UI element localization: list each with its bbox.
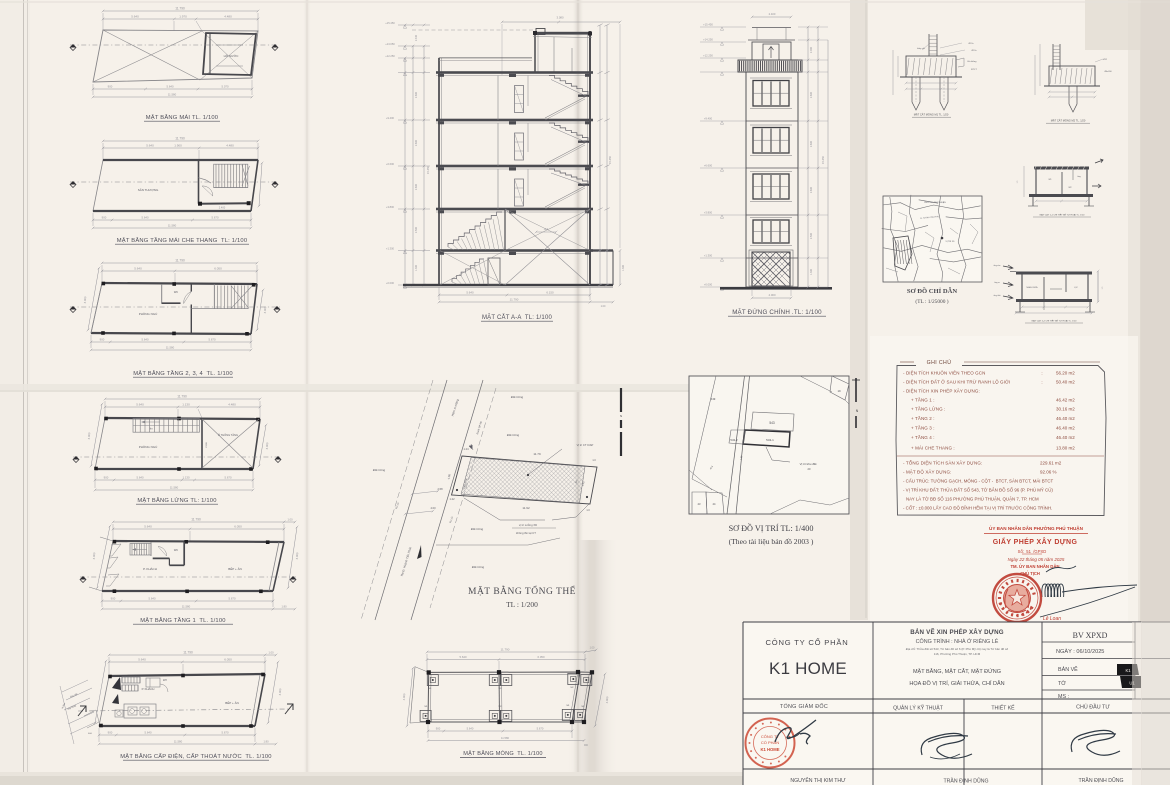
- svg-text:1.300: 1.300: [622, 264, 625, 271]
- svg-text:5.670: 5.670: [537, 727, 544, 731]
- svg-text:2.800: 2.800: [810, 140, 813, 147]
- svg-text:2.500: 2.500: [810, 232, 813, 239]
- svg-text:5.640: 5.640: [142, 338, 149, 342]
- svg-text:11.790: 11.790: [510, 298, 519, 302]
- svg-text:- MẬT ĐỘ XÂY DỰNG:: - MẬT ĐỘ XÂY DỰNG:: [903, 469, 951, 475]
- svg-text:2.800: 2.800: [415, 139, 418, 146]
- svg-text:TRẦN ĐỊNH DŨNG: TRẦN ĐỊNH DŨNG: [944, 778, 989, 785]
- svg-text:543-2: 543-2: [730, 438, 738, 442]
- svg-text:Địa chỉ: Thửa đất số 543, Tờ b: Địa chỉ: Thửa đất số 543, Tờ bản đồ số 6…: [906, 647, 1009, 651]
- svg-text:4.480: 4.480: [224, 15, 232, 19]
- svg-text:NAY LÀ TỜ BĐ SỐ 116 PHƯỜNG PHÚ: NAY LÀ TỜ BĐ SỐ 116 PHƯỜNG PHÚ THUẬN, QU…: [906, 497, 1039, 502]
- svg-text:5.640: 5.640: [137, 476, 144, 480]
- svg-text:- CẤU TRÚC: TƯỜNG GẠCH, MÓNG -: - CẤU TRÚC: TƯỜNG GẠCH, MÓNG - CỘT - BTC…: [903, 479, 1054, 484]
- svg-text:(Theo tài liệu bản đồ 2003 ): (Theo tài liệu bản đồ 2003 ): [729, 537, 814, 546]
- svg-text:5.640: 5.640: [138, 658, 146, 662]
- svg-text:5.640: 5.640: [460, 655, 467, 659]
- svg-text:2.000: 2.000: [810, 46, 813, 53]
- svg-text:+1.300: +1.300: [704, 254, 713, 258]
- svg-text:900: 900: [111, 597, 116, 601]
- svg-text:MS :: MS :: [1058, 694, 1069, 700]
- svg-text:50.40 m2: 50.40 m2: [1056, 380, 1075, 385]
- svg-text:+1.300: +1.300: [386, 247, 395, 251]
- svg-text:5.640: 5.640: [131, 15, 139, 19]
- svg-text:1.80: 1.80: [281, 605, 287, 609]
- svg-text:MẶT BẰNG TẦNG MÁI CHE THANG T: MẶT BẰNG TẦNG MÁI CHE THANG TL: 1/100: [117, 236, 248, 244]
- svg-text:MẶT BẰNG MÁI TL. 1/100: MẶT BẰNG MÁI TL. 1/100: [146, 113, 219, 121]
- svg-text:11.790: 11.790: [175, 137, 185, 141]
- svg-text:4.00: 4.00: [430, 506, 436, 510]
- svg-text:K1 HOME: K1 HOME: [760, 747, 779, 752]
- svg-text:11.790: 11.790: [501, 648, 510, 652]
- svg-text:BẢN VẼ: BẢN VẼ: [1058, 666, 1078, 673]
- svg-text:- TỔNG DIỆN TÍCH SÀN XÂY DỰNG:: - TỔNG DIỆN TÍCH SÀN XÂY DỰNG:: [903, 459, 982, 466]
- svg-text:5.640: 5.640: [167, 85, 174, 89]
- svg-text:PHÒNG NGỦ: PHÒNG NGỦ: [139, 311, 158, 316]
- svg-text:2.400: 2.400: [769, 12, 776, 16]
- svg-text:2.800: 2.800: [415, 183, 418, 190]
- svg-text:+3.800: +3.800: [386, 205, 395, 209]
- svg-text:vị trí xưởng XD: vị trí xưởng XD: [519, 523, 537, 527]
- svg-text:WC: WC: [174, 548, 178, 552]
- svg-text:- DIỆN TÍCH ĐẤT Ở SAU KHI TRỪ: - DIỆN TÍCH ĐẤT Ở SAU KHI TRỪ RANH LỘ GI…: [903, 378, 1010, 385]
- svg-text:Ngày 22 tháng 05 năm 2025: Ngày 22 tháng 05 năm 2025: [1008, 557, 1065, 562]
- svg-text:ĐH: ĐH: [163, 679, 167, 682]
- svg-text:HỌA ĐỒ VỊ TRÍ, GIẢI THỬA, CHỈ: HỌA ĐỒ VỊ TRÍ, GIẢI THỬA, CHỈ DẪN: [909, 680, 1004, 687]
- svg-text:BẢN VẼ XIN PHÉP XÂY DỰNG: BẢN VẼ XIN PHÉP XÂY DỰNG: [910, 628, 1004, 636]
- svg-text:549: 549: [711, 397, 716, 401]
- svg-text:46.40 m2: 46.40 m2: [1056, 416, 1075, 421]
- svg-text:+ TẦNG 4 :: + TẦNG 4 :: [911, 434, 935, 440]
- svg-text:11.790: 11.790: [183, 651, 193, 655]
- svg-text:5.640: 5.640: [466, 291, 474, 295]
- svg-text:900: 900: [436, 727, 441, 731]
- svg-text:4.000: 4.000: [769, 293, 776, 297]
- svg-text:900: 900: [108, 731, 113, 735]
- svg-text:13.80 m2: 13.80 m2: [1056, 446, 1075, 451]
- svg-text:15.450: 15.450: [608, 155, 612, 163]
- svg-text:+ TẦNG LỬNG :: + TẦNG LỬNG :: [911, 406, 945, 412]
- svg-text:Đà kiềng: Đà kiềng: [968, 60, 977, 63]
- svg-text:- DIỆN TÍCH KHUÔN VIÊN THEO GC: - DIỆN TÍCH KHUÔN VIÊN THEO GCN: [903, 369, 985, 376]
- svg-text:Vị trí CT K/AP: Vị trí CT K/AP: [577, 443, 594, 447]
- svg-text:900: 900: [104, 476, 109, 480]
- svg-text:5.640: 5.640: [142, 216, 149, 220]
- svg-text:- CỐT : ±0.000 LẤY CAO ĐỘ ĐỈNH: - CỐT : ±0.000 LẤY CAO ĐỘ ĐỈNH HẺM TẠI V…: [903, 506, 1052, 511]
- svg-text:2.400: 2.400: [415, 34, 418, 41]
- svg-text:4.000: 4.000: [87, 432, 92, 440]
- svg-text:1.00: 1.00: [590, 647, 595, 650]
- svg-text:+15.450: +15.450: [385, 21, 395, 25]
- svg-text:NGUYỄN THỊ KIM THƯ: NGUYỄN THỊ KIM THƯ: [790, 777, 846, 784]
- svg-text:900: 900: [108, 85, 113, 89]
- svg-text:6.050: 6.050: [234, 525, 242, 529]
- svg-text:NGĂN CHỨA: NGĂN CHỨA: [1026, 286, 1038, 289]
- svg-text:TL : 1/200: TL : 1/200: [506, 600, 538, 609]
- svg-text:2.800: 2.800: [810, 186, 813, 193]
- svg-text:Lê Loan: Lê Loan: [1043, 616, 1061, 622]
- svg-text:Ø6a200: Ø6a200: [1104, 71, 1112, 73]
- svg-text:4.000: 4.000: [295, 552, 300, 560]
- svg-text:NGÀY : 06/10/2025: NGÀY : 06/10/2025: [1056, 648, 1104, 655]
- svg-text:MẶT BẰNG MÓNG TL. 1/100: MẶT BẰNG MÓNG TL. 1/100: [463, 749, 543, 757]
- svg-text:1.00: 1.00: [287, 518, 293, 522]
- svg-text:11.790: 11.790: [175, 7, 185, 11]
- svg-text:2.800: 2.800: [415, 91, 418, 98]
- svg-text:11.580: 11.580: [182, 605, 191, 609]
- svg-text:- DIỆN TÍCH XIN PHÉP XÂY DỰNG:: - DIỆN TÍCH XIN PHÉP XÂY DỰNG:: [903, 387, 980, 394]
- svg-text:MẶT CẮT A-A TL: 1/100: MẶT CẮT A-A TL: 1/100: [482, 313, 553, 321]
- svg-text:+9.400: +9.400: [386, 116, 395, 120]
- svg-text:WC: WC: [174, 290, 178, 294]
- svg-text:CỔ PHẦN: CỔ PHẦN: [761, 740, 779, 745]
- svg-text:+0.000: +0.000: [386, 281, 395, 285]
- svg-text:+3.800: +3.800: [704, 211, 713, 215]
- svg-text:1.970: 1.970: [179, 15, 187, 19]
- svg-text:+ MÁI CHE THANG :: + MÁI CHE THANG :: [911, 445, 955, 451]
- svg-text:5.640: 5.640: [144, 525, 152, 529]
- svg-text:4.000: 4.000: [83, 296, 88, 304]
- svg-text:92.06 %: 92.06 %: [1040, 470, 1057, 475]
- svg-text:Đất trống: Đất trống: [471, 527, 484, 531]
- svg-text:5.640: 5.640: [145, 731, 152, 735]
- svg-text:1.130: 1.130: [182, 403, 190, 407]
- svg-text:6.050: 6.050: [538, 655, 545, 659]
- svg-text:THIẾT KẾ: THIẾT KẾ: [991, 705, 1015, 712]
- svg-text:15.450: 15.450: [426, 165, 430, 173]
- svg-text:1.24: 1.24: [463, 447, 469, 451]
- svg-text:1.900: 1.900: [174, 144, 182, 148]
- svg-text:1.22: 1.22: [449, 497, 455, 501]
- svg-text:ống ra: ống ra: [994, 281, 1000, 284]
- svg-text:5.070: 5.070: [222, 85, 229, 89]
- svg-text:900: 900: [102, 216, 107, 220]
- svg-text:6.050: 6.050: [224, 658, 232, 662]
- svg-text:46.42 m2: 46.42 m2: [1056, 398, 1075, 403]
- svg-text:+0.000: +0.000: [704, 283, 713, 287]
- svg-text:MẶT BẰNG CẤP ĐIỆN, CẤP THOÁT N: MẶT BẰNG CẤP ĐIỆN, CẤP THOÁT NƯỚC TL. 1/…: [120, 752, 271, 760]
- svg-text:229.61 m2: 229.61 m2: [1040, 461, 1062, 466]
- svg-text:2.800: 2.800: [810, 91, 813, 98]
- svg-text:TỜ: TỜ: [1058, 680, 1066, 687]
- svg-text:5.670: 5.670: [212, 216, 219, 220]
- svg-text:11.580: 11.580: [168, 93, 177, 97]
- svg-text:MẶT BẰNG, MẶT CẮT, MẶT ĐỨNG: MẶT BẰNG, MẶT CẮT, MẶT ĐỨNG: [913, 667, 1001, 675]
- svg-text:1.00: 1.00: [268, 651, 274, 655]
- svg-text:6.150: 6.150: [546, 291, 554, 295]
- svg-text:4.000: 4.000: [265, 442, 270, 450]
- svg-text:1.300: 1.300: [810, 268, 813, 275]
- svg-text:2.195: 2.195: [206, 441, 208, 447]
- svg-text:900: 900: [100, 338, 105, 342]
- svg-text:N: N: [620, 414, 622, 418]
- svg-text:11.580: 11.580: [166, 346, 175, 350]
- svg-text:K1: K1: [1125, 668, 1131, 673]
- svg-text:MẶT ĐỨNG CHÍNH .TL: 1/100: MẶT ĐỨNG CHÍNH .TL: 1/100: [732, 309, 822, 316]
- svg-text:(TL : 1/25000 ): (TL : 1/25000 ): [915, 298, 948, 305]
- svg-text:543: 543: [769, 421, 775, 425]
- svg-text:6.050: 6.050: [214, 267, 222, 271]
- svg-text:30.16 m2: 30.16 m2: [1056, 407, 1075, 412]
- svg-text::: :: [1041, 380, 1042, 385]
- svg-text:P. KHÁCH: P. KHÁCH: [143, 567, 157, 571]
- svg-text:SƠ ĐỒ CHỈ DẪN: SƠ ĐỒ CHỈ DẪN: [907, 287, 958, 295]
- svg-text:CÔNG TRÌNH : NHÀ Ở RIÊNG LẺ: CÔNG TRÌNH : NHÀ Ở RIÊNG LẺ: [916, 637, 999, 645]
- svg-text:VỊ TRÍ XD: VỊ TRÍ XD: [946, 240, 956, 243]
- svg-text:+9.400: +9.400: [704, 117, 713, 121]
- svg-text:1.00: 1.00: [601, 305, 606, 308]
- svg-text:BV XPXD: BV XPXD: [1073, 631, 1108, 640]
- svg-text:CÔNG TY CỔ PHẦN: CÔNG TY CỔ PHẦN: [765, 637, 848, 647]
- svg-text:MẶT CẮT 1-1 CHI TIẾT BỂ TỰ HOẠ: MẶT CẮT 1-1 CHI TIẾT BỂ TỰ HOẠI TL. 1/20: [1040, 214, 1086, 217]
- svg-text:56.20 m2: 56.20 m2: [1056, 371, 1075, 376]
- svg-text:K1 HOME: K1 HOME: [769, 659, 847, 678]
- svg-text:ỦY BAN NHÂN DÂN PHƯỜNG PHÚ THU: ỦY BAN NHÂN DÂN PHƯỜNG PHÚ THUẬN: [989, 524, 1084, 531]
- svg-text:HỒ NƯỚC: HỒ NƯỚC: [224, 53, 240, 58]
- svg-text:SƠ ĐỒ VỊ TRÍ TL: 1/400: SƠ ĐỒ VỊ TRÍ TL: 1/400: [729, 523, 814, 533]
- svg-text:5.640: 5.640: [467, 727, 474, 731]
- svg-text:5.670: 5.670: [225, 476, 232, 480]
- svg-text:CHỦ ĐẦU TƯ: CHỦ ĐẦU TƯ: [1076, 704, 1110, 711]
- svg-text:thép cột: thép cột: [917, 47, 925, 50]
- svg-text:11.580: 11.580: [168, 224, 177, 228]
- svg-text:+6.600: +6.600: [704, 164, 713, 168]
- svg-text:11.92: 11.92: [522, 506, 530, 510]
- svg-text:P. KHÁCH: P. KHÁCH: [142, 687, 155, 691]
- svg-text:MẶT BẰNG TẦNG 1 TL. 1/100: MẶT BẰNG TẦNG 1 TL. 1/100: [140, 616, 225, 624]
- svg-text:+ TẦNG 2 :: + TẦNG 2 :: [911, 415, 935, 421]
- svg-text:11.790: 11.790: [175, 259, 185, 263]
- svg-text:543-1: 543-1: [766, 438, 774, 442]
- svg-text:4.000: 4.000: [263, 306, 268, 314]
- svg-text:PHƯỜNG PHÚ THUẬN: PHƯỜNG PHÚ THUẬN: [924, 201, 946, 204]
- svg-text:5.640: 5.640: [149, 597, 156, 601]
- svg-text:11.580: 11.580: [170, 486, 179, 490]
- svg-text:QUẢN LÝ KỸ THUẬT: QUẢN LÝ KỸ THUẬT: [893, 705, 944, 712]
- svg-text:46.40 m2: 46.40 m2: [1056, 426, 1075, 431]
- svg-text:4.000: 4.000: [278, 688, 283, 696]
- svg-text:+ TẦNG 1 :: + TẦNG 1 :: [911, 397, 935, 403]
- svg-text:5.670: 5.670: [229, 597, 236, 601]
- svg-text:1.130: 1.130: [183, 476, 190, 480]
- svg-text:1.80: 1.80: [263, 740, 269, 744]
- svg-text:MẶT CẮT 2-2 CHI TIẾT BỂ TỰ HOẠ: MẶT CẮT 2-2 CHI TIẾT BỂ TỰ HOẠI TL. 1/20: [1032, 320, 1078, 323]
- svg-text:Đất trống: Đất trống: [511, 395, 524, 399]
- svg-text:3.080: 3.080: [557, 16, 564, 20]
- svg-text:+6.600: +6.600: [386, 162, 395, 166]
- svg-text:11.790: 11.790: [191, 518, 201, 522]
- svg-text:Số: 51 /GPXD: Số: 51 /GPXD: [1018, 549, 1047, 554]
- svg-text:BẾP + ĂN: BẾP + ĂN: [228, 566, 242, 571]
- svg-text:5.670: 5.670: [222, 731, 229, 735]
- svg-text:ống thải: ống thải: [994, 294, 1001, 297]
- svg-text:PHÒNG NGỦ: PHÒNG NGỦ: [139, 444, 158, 449]
- svg-text:5.640: 5.640: [146, 144, 154, 148]
- svg-text:11.580: 11.580: [174, 740, 183, 744]
- svg-text:MẶT BẰNG TẦNG 2, 3, 4 TL. 1/1: MẶT BẰNG TẦNG 2, 3, 4 TL. 1/100: [133, 369, 233, 377]
- svg-text:116, Phường Phú Thuận, TP. HCM: 116, Phường Phú Thuận, TP. HCM: [934, 652, 981, 656]
- svg-text:2.500: 2.500: [415, 226, 418, 233]
- svg-text:11.79: 11.79: [533, 452, 541, 456]
- svg-text:BTCT: BTCT: [971, 69, 977, 71]
- svg-text:ống vào: ống vào: [994, 264, 1001, 267]
- svg-text:5.640: 5.640: [136, 403, 144, 407]
- svg-text::: :: [1041, 371, 1042, 376]
- svg-text:5.670: 5.670: [209, 338, 216, 342]
- svg-text:ĐH: ĐH: [88, 733, 92, 735]
- svg-text:+12.250: +12.250: [385, 54, 395, 58]
- svg-text:MẶT BẰNG LỬNG TL: 1/100: MẶT BẰNG LỬNG TL: 1/100: [137, 496, 216, 504]
- svg-text:46.40 m2: 46.40 m2: [1056, 435, 1075, 440]
- svg-text:+12.250: +12.250: [703, 54, 713, 58]
- svg-text:1.300: 1.300: [415, 264, 418, 271]
- svg-text:+13.050: +13.050: [385, 42, 395, 46]
- svg-text:2.58: 2.58: [437, 487, 443, 491]
- svg-text:TRẦN ĐỊNH DŨNG: TRẦN ĐỊNH DŨNG: [1079, 777, 1124, 784]
- svg-text:Đất trống: Đất trống: [472, 565, 485, 569]
- svg-text:Vị trí khu đất: Vị trí khu đất: [800, 462, 817, 466]
- svg-text:ống: ống: [1077, 175, 1080, 178]
- svg-text:11.580: 11.580: [501, 736, 510, 740]
- svg-text:Đất trống: Đất trống: [507, 433, 520, 437]
- svg-text:Đất trống: Đất trống: [373, 468, 386, 472]
- svg-text:900: 900: [584, 744, 589, 747]
- svg-text:19: 19: [837, 389, 841, 393]
- svg-text:4.480: 4.480: [226, 144, 234, 148]
- svg-text:15.450: 15.450: [821, 155, 825, 163]
- svg-text:SÂN THƯỢNG: SÂN THƯỢNG: [138, 187, 159, 192]
- svg-text:BẾP + ĂN: BẾP + ĂN: [225, 700, 239, 705]
- svg-text:TỔNG GIÁM ĐỐC: TỔNG GIÁM ĐỐC: [780, 703, 828, 710]
- svg-text:4.000: 4.000: [402, 693, 407, 701]
- svg-text:- VỊ TRÍ KHU ĐẤT: THỬA ĐẤT SỐ: - VỊ TRÍ KHU ĐẤT: THỬA ĐẤT SỐ 543, TỜ BẢ…: [903, 488, 1053, 493]
- svg-text:11.790: 11.790: [177, 395, 187, 399]
- svg-text:+15.450: +15.450: [703, 23, 713, 27]
- svg-text:4.000: 4.000: [605, 696, 610, 704]
- svg-text:4.480: 4.480: [228, 403, 236, 407]
- svg-text:5.640: 5.640: [134, 267, 142, 271]
- svg-text:không tồn tại CT: không tồn tại CT: [516, 531, 536, 535]
- svg-text:2.400: 2.400: [219, 206, 226, 210]
- svg-text:GHI CHÚ: GHI CHÚ: [927, 359, 952, 366]
- svg-text:+0.4: +0.4: [544, 228, 549, 231]
- svg-text:+14.250: +14.250: [703, 38, 713, 42]
- svg-text:+ TẦNG 3 :: + TẦNG 3 :: [911, 425, 935, 431]
- svg-text:4.000: 4.000: [92, 552, 97, 560]
